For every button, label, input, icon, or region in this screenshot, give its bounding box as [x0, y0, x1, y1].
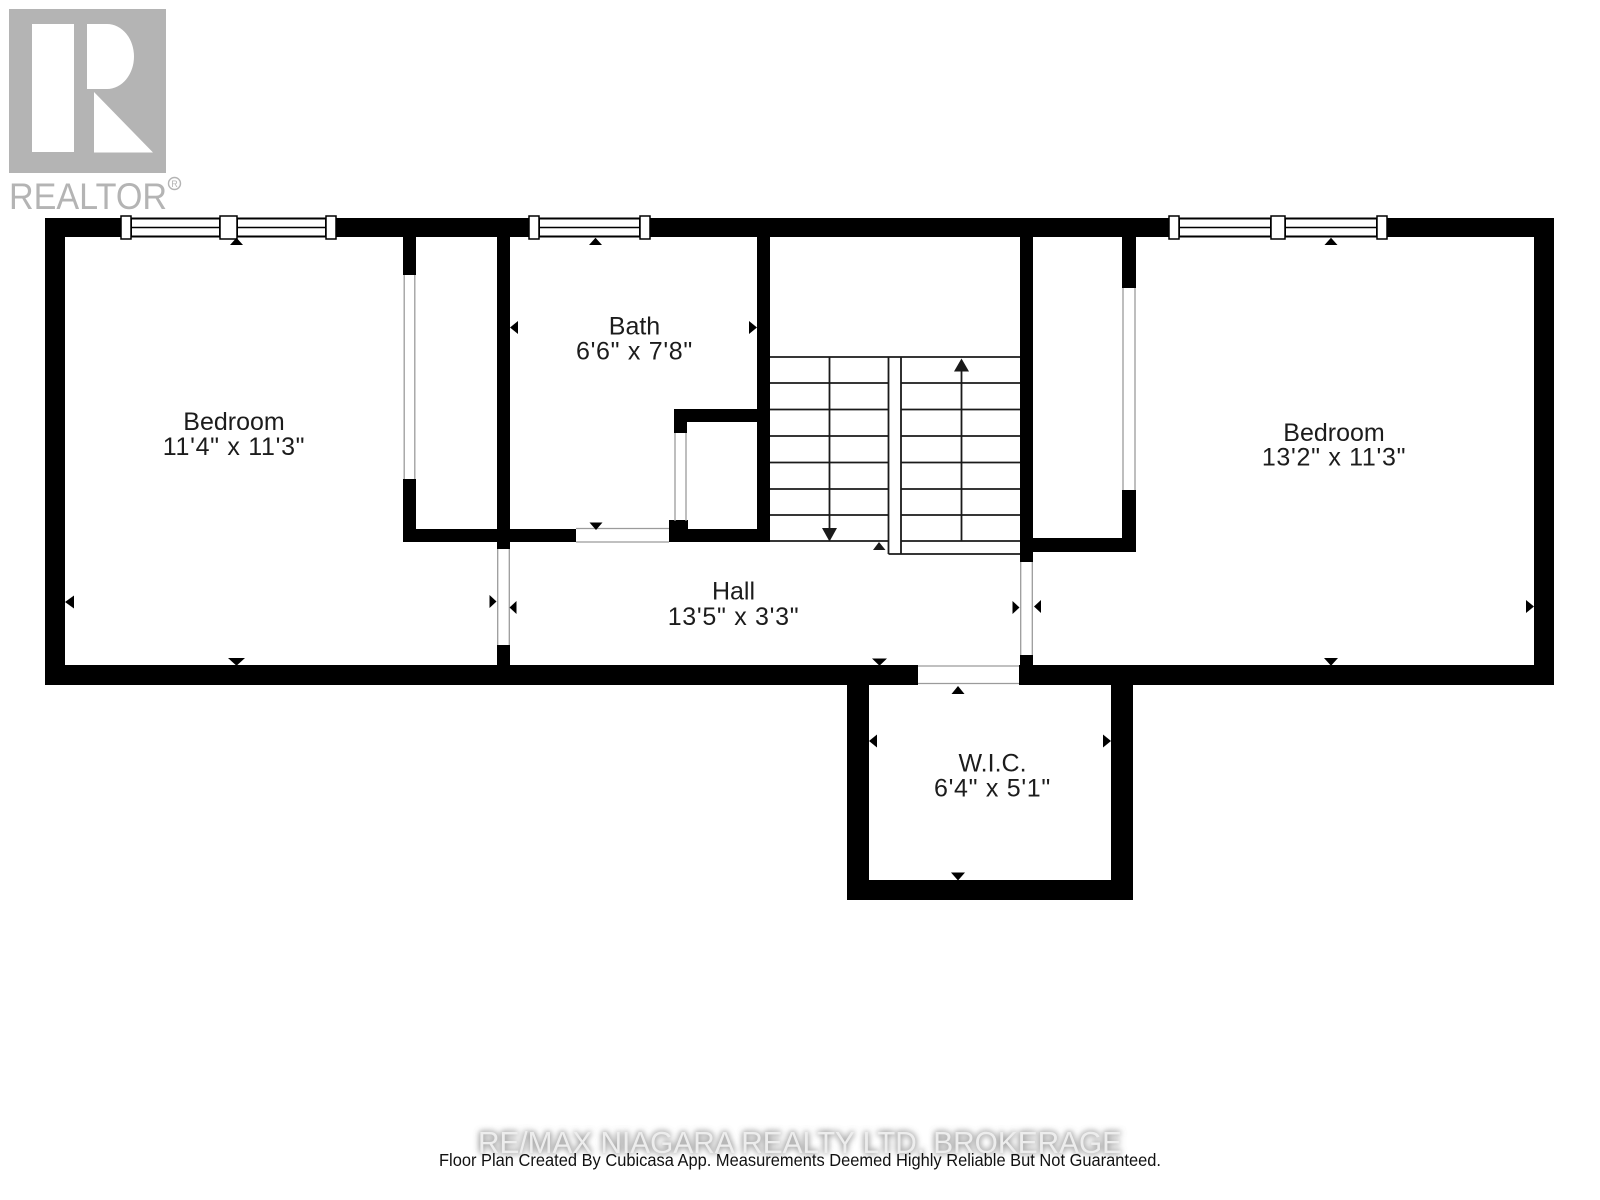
svg-text:Hall: Hall [712, 578, 755, 606]
svg-text:R: R [171, 179, 178, 189]
svg-text:Floor Plan Created By Cubicasa: Floor Plan Created By Cubicasa App. Meas… [439, 1150, 1161, 1170]
svg-text:13'2" x 11'3": 13'2" x 11'3" [1262, 444, 1406, 472]
svg-text:11'4" x 11'3": 11'4" x 11'3" [163, 433, 306, 461]
svg-text:W.I.C.: W.I.C. [958, 750, 1026, 778]
svg-text:6'6" x 7'8": 6'6" x 7'8" [576, 338, 693, 366]
svg-text:Bedroom: Bedroom [183, 408, 284, 436]
svg-text:REALTOR: REALTOR [9, 176, 167, 217]
svg-text:6'4" x 5'1": 6'4" x 5'1" [934, 775, 1051, 803]
svg-text:Bath: Bath [609, 313, 660, 341]
svg-text:13'5" x 3'3": 13'5" x 3'3" [668, 603, 800, 631]
